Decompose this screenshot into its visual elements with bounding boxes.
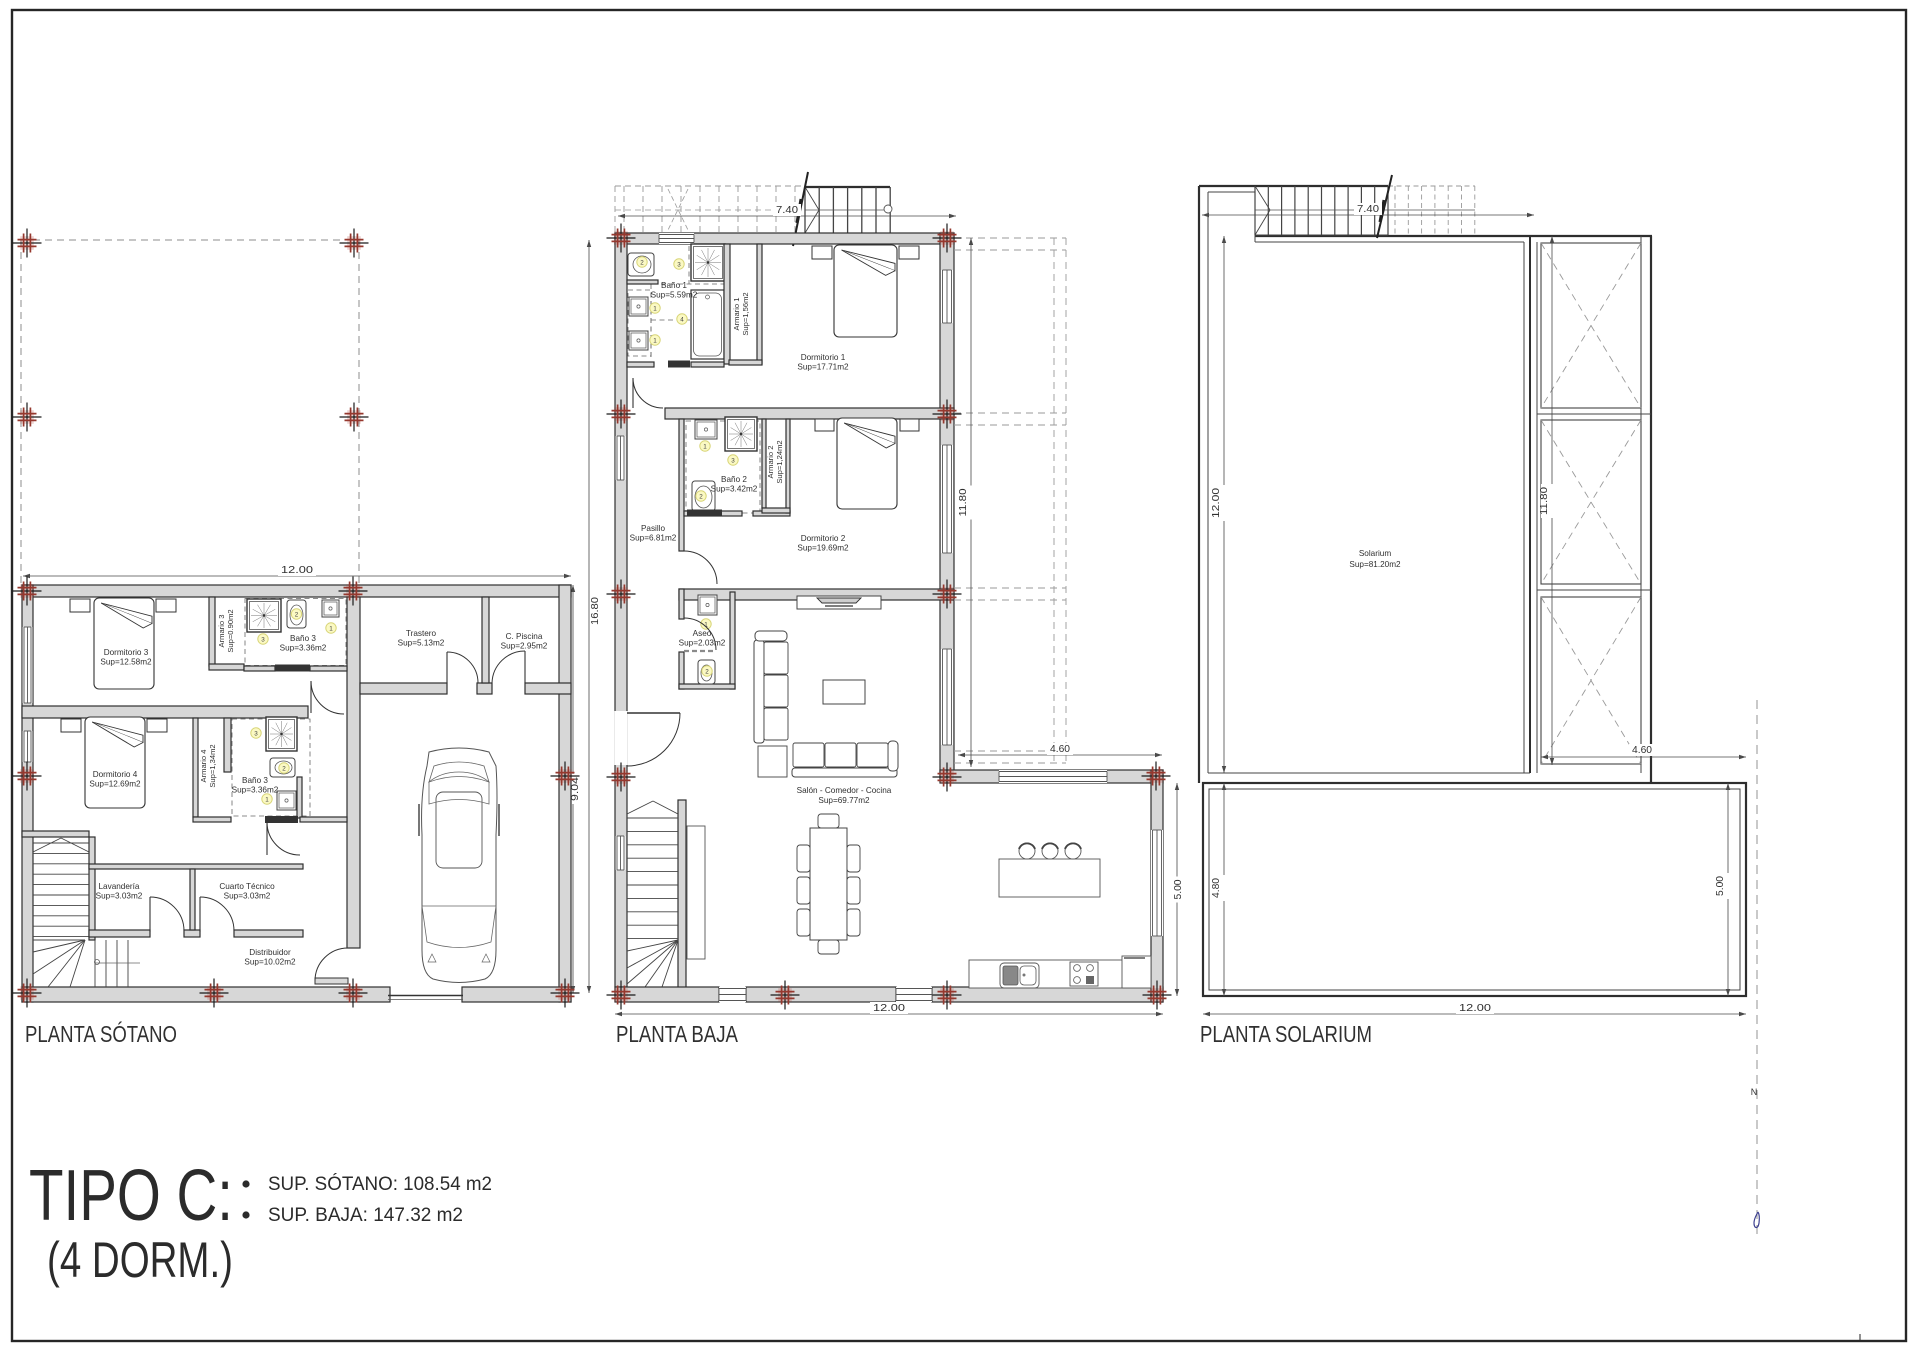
svg-text:Dormitorio 4: Dormitorio 4 xyxy=(93,770,138,779)
svg-text:3: 3 xyxy=(731,457,735,464)
svg-text:Dormitorio 1: Dormitorio 1 xyxy=(801,353,846,362)
svg-text:Sup=81.20m2: Sup=81.20m2 xyxy=(1349,560,1401,569)
svg-text:Armario 2: Armario 2 xyxy=(766,446,775,479)
svg-text:Sup=3.42m2: Sup=3.42m2 xyxy=(711,485,758,494)
svg-text:3: 3 xyxy=(677,261,681,268)
svg-text:2: 2 xyxy=(705,668,709,675)
svg-text:(4 DORM.): (4 DORM.) xyxy=(47,1232,233,1288)
svg-text:Baño 1: Baño 1 xyxy=(661,281,687,290)
svg-text:Lavandería: Lavandería xyxy=(99,882,140,891)
svg-text:1: 1 xyxy=(703,443,707,450)
svg-text:4.60: 4.60 xyxy=(1050,743,1070,755)
svg-text:Armario 4: Armario 4 xyxy=(199,750,208,783)
svg-text:Sup=17.71m2: Sup=17.71m2 xyxy=(797,363,849,372)
svg-text:4.80: 4.80 xyxy=(1210,878,1222,898)
svg-text:Sup=3.03m2: Sup=3.03m2 xyxy=(224,892,271,901)
svg-text:Armario 3: Armario 3 xyxy=(217,615,226,648)
svg-text:Sup=2.95m2: Sup=2.95m2 xyxy=(501,642,548,651)
svg-text:Sup=2.03m2: Sup=2.03m2 xyxy=(679,639,726,648)
svg-text:16.80: 16.80 xyxy=(589,597,601,625)
svg-text:Sup=6.81m2: Sup=6.81m2 xyxy=(630,534,677,543)
svg-text:11.80: 11.80 xyxy=(1538,487,1550,515)
svg-text:Sup=19.69m2: Sup=19.69m2 xyxy=(797,544,849,553)
svg-text:Salón - Comedor - Cocina: Salón - Comedor - Cocina xyxy=(797,786,892,795)
svg-text:5.00: 5.00 xyxy=(1172,879,1184,899)
svg-text:SUP. SÓTANO: 108.54 m2: SUP. SÓTANO: 108.54 m2 xyxy=(268,1173,492,1195)
svg-text:3: 3 xyxy=(254,730,258,737)
svg-text:Sup=3.36m2: Sup=3.36m2 xyxy=(232,786,279,795)
svg-text:Sup=10.02m2: Sup=10.02m2 xyxy=(244,958,296,967)
svg-text:Distribuidor: Distribuidor xyxy=(249,948,291,957)
svg-text:PLANTA SOLARIUM: PLANTA SOLARIUM xyxy=(1200,1021,1372,1047)
svg-text:Sup=12.58m2: Sup=12.58m2 xyxy=(100,658,152,667)
svg-text:Solarium: Solarium xyxy=(1359,549,1391,558)
svg-text:1: 1 xyxy=(653,305,657,312)
svg-text:11.80: 11.80 xyxy=(957,488,969,516)
svg-text:12.00: 12.00 xyxy=(1210,488,1222,518)
svg-text:Armario 1: Armario 1 xyxy=(732,298,741,331)
svg-text:Sup=1,34m2: Sup=1,34m2 xyxy=(208,744,217,787)
svg-text:C. Piscina: C. Piscina xyxy=(506,632,543,641)
svg-text:1: 1 xyxy=(265,796,269,803)
svg-text:Pasillo: Pasillo xyxy=(641,524,666,533)
svg-text:Dormitorio 3: Dormitorio 3 xyxy=(104,648,149,657)
svg-text:Trastero: Trastero xyxy=(406,629,437,638)
svg-text:Sup=5.13m2: Sup=5.13m2 xyxy=(398,639,445,648)
svg-text:Baño 3: Baño 3 xyxy=(242,776,268,785)
svg-text:Cuarto Técnico: Cuarto Técnico xyxy=(219,882,275,891)
svg-text:12.00: 12.00 xyxy=(873,1002,905,1014)
svg-text:Sup=12.69m2: Sup=12.69m2 xyxy=(89,780,141,789)
svg-text:Baño 2: Baño 2 xyxy=(721,475,747,484)
svg-text:5.00: 5.00 xyxy=(1714,876,1726,896)
svg-text:Sup=3.36m2: Sup=3.36m2 xyxy=(280,644,327,653)
svg-text:2: 2 xyxy=(640,259,644,266)
svg-text:2: 2 xyxy=(282,765,286,772)
svg-text:7.40: 7.40 xyxy=(1357,203,1379,215)
svg-text:Sup=1,24m2: Sup=1,24m2 xyxy=(775,440,784,483)
svg-text:12.00: 12.00 xyxy=(1459,1002,1491,1014)
svg-text:2: 2 xyxy=(699,493,703,500)
svg-text:N: N xyxy=(1751,1087,1758,1097)
svg-text:PLANTA BAJA: PLANTA BAJA xyxy=(616,1021,739,1047)
svg-text:Sup=0.90m2: Sup=0.90m2 xyxy=(226,609,235,652)
svg-text:Baño 3: Baño 3 xyxy=(290,634,316,643)
svg-text:TIPO C:: TIPO C: xyxy=(29,1156,233,1236)
svg-text:7.40: 7.40 xyxy=(776,204,798,216)
svg-text:1: 1 xyxy=(329,625,333,632)
svg-text:SUP. BAJA: 147.32 m2: SUP. BAJA: 147.32 m2 xyxy=(268,1205,463,1226)
svg-text:1: 1 xyxy=(653,337,657,344)
svg-text:PLANTA SÓTANO: PLANTA SÓTANO xyxy=(25,1021,177,1047)
svg-text:Sup=1,56m2: Sup=1,56m2 xyxy=(741,292,750,335)
svg-text:Aseo: Aseo xyxy=(693,629,712,638)
svg-text:4.60: 4.60 xyxy=(1632,744,1652,756)
svg-text:Sup=5.59m2: Sup=5.59m2 xyxy=(651,291,698,300)
svg-text:4: 4 xyxy=(680,316,684,323)
svg-text:12.00: 12.00 xyxy=(281,564,313,576)
svg-text:Dormitorio 2: Dormitorio 2 xyxy=(801,534,846,543)
svg-text:Sup=69.77m2: Sup=69.77m2 xyxy=(818,796,870,805)
svg-text:3: 3 xyxy=(261,636,265,643)
svg-text:Sup=3.03m2: Sup=3.03m2 xyxy=(96,892,143,901)
svg-text:2: 2 xyxy=(295,611,299,618)
